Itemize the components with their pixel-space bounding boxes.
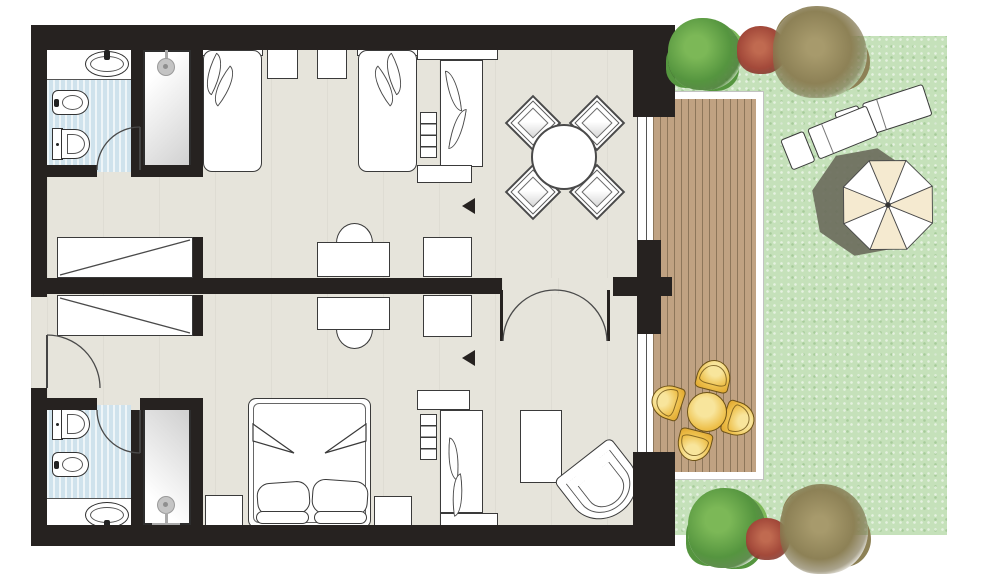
cabinet-upper [423,237,472,277]
bidet-upper [52,90,89,115]
closet-lower [57,295,193,336]
nightstand [374,496,412,528]
shrub-green-top [668,18,742,90]
bathroom-lower-door-leaf [139,410,141,453]
window-upper-room [637,117,647,240]
wall-bottom [31,525,675,546]
wall-central [31,278,502,294]
nightstand [267,48,298,79]
shrub-olive-top [773,6,867,98]
french-door-leaf-left [500,290,503,341]
toilet-lower [52,408,90,440]
toilet-bowl [61,409,90,439]
entry-door-leaf [46,335,48,388]
cabinet-lower [423,295,472,337]
toilet-upper [52,128,90,160]
wall-bath-upper-left [31,165,97,177]
window-lower-room [637,334,647,452]
floor-doorway-patch [502,278,613,294]
pillar-cross-horizontal [613,277,672,296]
wall-top [31,25,675,50]
french-door-leaf-right [607,290,610,341]
closet-upper [57,237,193,278]
floor-plan [0,0,1000,581]
outdoor-table [687,392,727,432]
floor-entry-patch [31,297,47,388]
wall-bath-lower-right [140,398,203,410]
bathroom-upper-door-leaf [139,127,141,170]
luggage-bench-lower [417,390,470,410]
wardrobe-lower-shelves [420,414,437,460]
desk-upper [317,242,390,277]
wall-closet-cap-lower [193,295,203,336]
desk-lower [317,297,390,330]
ottoman-table [520,410,562,483]
headboard-cushion [314,511,367,524]
toilet-bowl [61,129,90,159]
wardrobe-upper-shelves [420,112,437,158]
door-stop-marker [462,350,475,366]
wall-shower-lower-left [131,410,143,525]
wall-closet-cap-upper [193,237,203,278]
dining-table [531,124,597,190]
headboard-cushion [256,511,309,524]
wall-shower-upper-left [131,50,143,177]
luggage-bench-upper [417,165,472,183]
door-stop-marker [462,198,475,214]
sink-upper-faucet [104,50,110,60]
wall-corner-se [633,452,675,525]
wall-bath-lower-left [31,398,97,410]
shrub-olive-bottom [780,484,868,574]
wall-left-lower [31,388,47,546]
nightstand [317,48,347,79]
shower-upper-head [157,58,175,76]
wall-shower-lower-right [191,410,203,525]
shower-lower-head [157,496,175,514]
wall-shower-upper-right [191,50,203,177]
bidet-lower [52,452,89,477]
